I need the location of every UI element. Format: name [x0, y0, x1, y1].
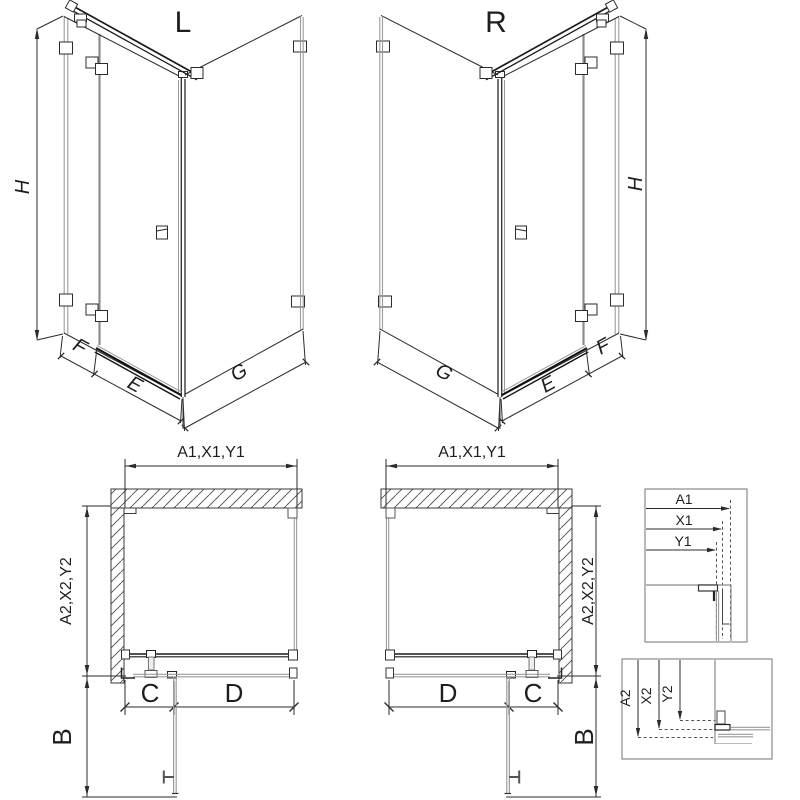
dim-label-e-right: E	[537, 372, 560, 398]
detail-box-width-reference	[645, 489, 747, 642]
detail-label-y2: Y2	[659, 685, 675, 702]
detail-label-x1: X1	[675, 512, 692, 528]
dim-label-e-left: E	[124, 372, 147, 398]
dim-label-h-left: H	[12, 179, 34, 194]
dim-label-d-left: D	[225, 678, 244, 708]
wall-top-left-plan	[111, 489, 302, 508]
wall-top-right-plan	[381, 489, 572, 508]
dim-label-g-left: G	[227, 359, 251, 386]
dim-label-a2-left: A2,X2,Y2	[58, 557, 75, 625]
dim-label-d-right: D	[439, 678, 458, 708]
detail-box-depth-reference	[622, 659, 772, 759]
technical-drawing-page: L H F E G R H F E G A1,X1,Y1 A2,X2,Y2 B …	[0, 0, 800, 800]
dim-label-b-right: B	[569, 728, 599, 745]
detail-label-a1: A1	[675, 491, 692, 507]
dim-label-b-left: B	[47, 728, 77, 745]
variant-label-right: R	[485, 6, 507, 39]
dim-label-a1-right: A1,X1,Y1	[438, 444, 506, 461]
detail-label-x2: X2	[638, 687, 654, 704]
dim-label-h-right: H	[625, 176, 647, 191]
iso-view-right	[374, 0, 648, 431]
variant-label-left: L	[175, 6, 192, 39]
detail-label-a2: A2	[617, 689, 633, 706]
dim-label-a1-left: A1,X1,Y1	[177, 444, 245, 461]
dim-label-c-left: C	[141, 678, 160, 708]
dim-label-c-right: C	[524, 678, 543, 708]
dim-label-a2-right: A2,X2,Y2	[580, 557, 597, 625]
detail-label-y1: Y1	[674, 533, 691, 549]
dim-label-g-right: G	[432, 359, 456, 386]
shower-enclosure-drawing: L H F E G R H F E G A1,X1,Y1 A2,X2,Y2 B …	[0, 0, 800, 800]
iso-view-left	[35, 0, 309, 431]
